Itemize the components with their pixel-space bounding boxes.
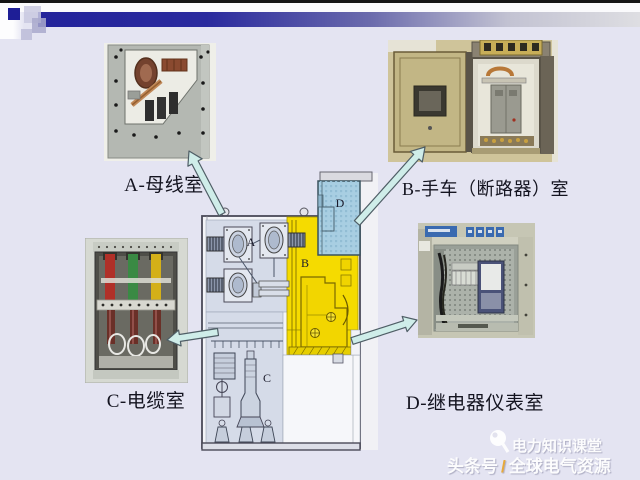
watermark-magnifier-icon — [486, 427, 512, 455]
diagram-paper-margin — [360, 173, 378, 450]
watermark-source: 全球电气资源 — [509, 457, 611, 476]
photo-busbar-compartment — [104, 43, 216, 166]
photo-cable-compartment — [85, 238, 188, 388]
diagram-letter-a: A — [247, 235, 256, 249]
header-gradient-bar — [38, 12, 640, 27]
watermark-source-line: 头条号/全球电气资源 — [447, 452, 611, 477]
photo-breaker-compartment — [388, 40, 558, 167]
deco-square-navy — [8, 8, 20, 20]
deco-square-light-3 — [21, 29, 32, 40]
diagram-letter-c: C — [263, 371, 271, 385]
diagram-letter-d: D — [336, 196, 345, 210]
open-door — [394, 52, 466, 152]
label-relay-room: D-继电器仪表室 — [406, 388, 544, 415]
watermark-channel: 头条号 — [447, 457, 498, 476]
cabinet-base — [202, 443, 360, 450]
phase-bars — [101, 252, 171, 300]
diagram-letter-b: B — [301, 256, 309, 270]
header-white-band — [0, 3, 640, 12]
label-breaker-room: B-手车（断路器）室 — [402, 175, 569, 201]
deco-square-light-2 — [32, 18, 46, 33]
empty-bay — [283, 355, 360, 445]
cabinet-top-panel — [472, 40, 550, 59]
slide-canvas: A-母线室 — [0, 0, 640, 480]
photo-relay-compartment — [418, 223, 535, 343]
watermark-separator: / — [498, 457, 509, 476]
breaker-opening — [466, 52, 554, 154]
label-cable-room: C-电缆室 — [96, 386, 196, 413]
switchgear-section-diagram: A B C D — [195, 165, 380, 460]
